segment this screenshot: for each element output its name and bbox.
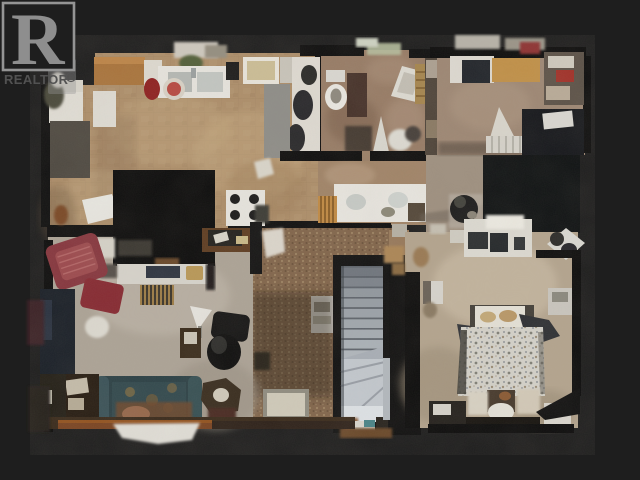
svg-text:R: R — [11, 0, 66, 81]
svg-text:R: R — [68, 73, 74, 82]
svg-text:REALTOR: REALTOR — [4, 72, 69, 87]
